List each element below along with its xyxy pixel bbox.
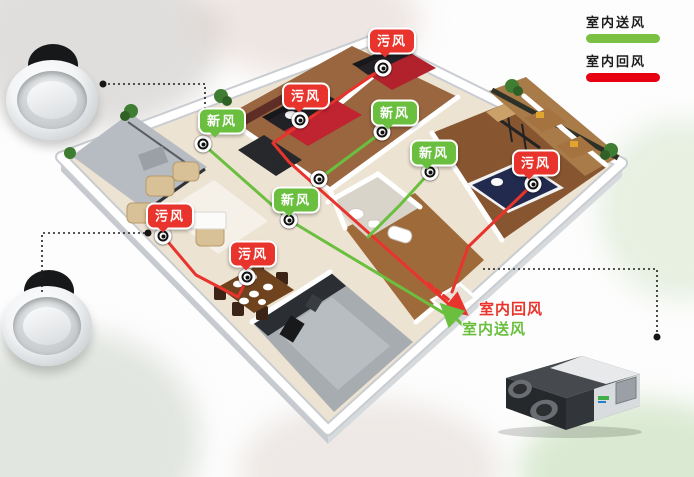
return-duct-line (452, 184, 533, 292)
legend-return-bar (586, 73, 660, 82)
badge-fresh-air-3: 新风 (198, 108, 246, 135)
badge-foul-air-2: 污风 (282, 83, 330, 110)
callout-connector (42, 233, 148, 292)
legend-item-return: 室内回风 (586, 51, 660, 82)
ventilation-system-diagram: 污风污风新风新风新风污风新风污风污风 室内送风 室内回风 室内回风 室内送风 (0, 0, 694, 477)
air-diffuser-icon (311, 171, 328, 188)
legend-return-label: 室内回风 (586, 51, 660, 70)
badge-fresh-air-7: 新风 (272, 187, 320, 214)
connector-endpoint-dot (654, 334, 661, 341)
badge-foul-air-8: 污风 (146, 203, 194, 230)
legend-supply-bar (586, 34, 660, 43)
supply-duct-line (368, 172, 430, 237)
legend: 室内送风 室内回风 (586, 12, 660, 90)
indoor-return-air-label: 室内回风 (479, 298, 543, 319)
badge-fresh-air-5: 新风 (410, 140, 458, 167)
callout-connector (103, 84, 205, 138)
legend-supply-label: 室内送风 (586, 12, 660, 31)
connector-endpoint-dot (145, 230, 152, 237)
badge-foul-air-1: 污风 (368, 28, 416, 55)
badge-foul-air-9: 污风 (229, 241, 277, 268)
badge-foul-air-6: 污风 (512, 150, 560, 177)
legend-item-supply: 室内送风 (586, 12, 660, 43)
connector-endpoint-dot (100, 81, 107, 88)
badge-fresh-air-4: 新风 (371, 100, 419, 127)
indoor-supply-air-label: 室内送风 (462, 318, 526, 339)
